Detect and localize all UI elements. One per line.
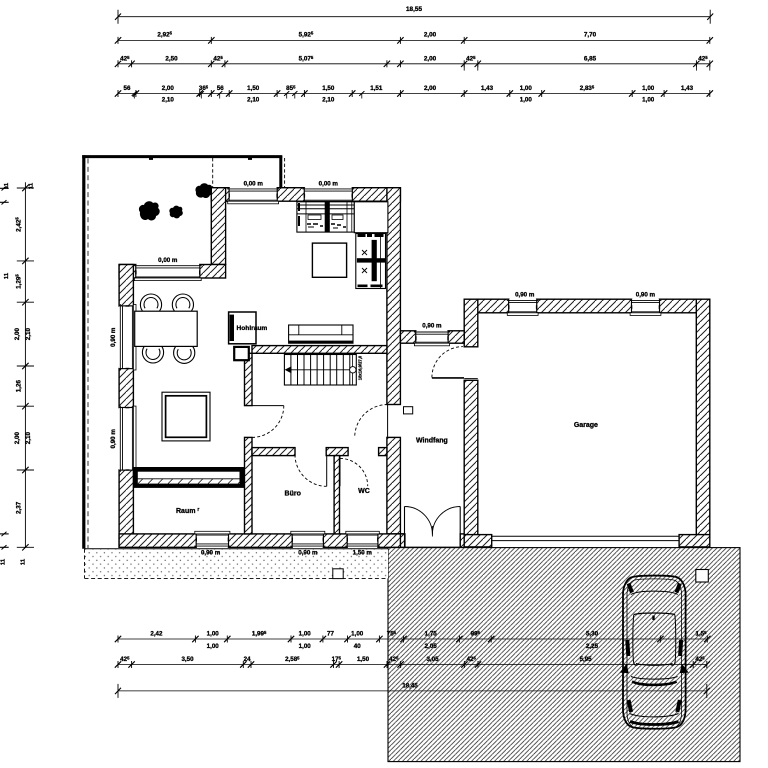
svg-text:18,45: 18,45 [402,683,418,690]
svg-text:0,90 m: 0,90 m [636,292,656,299]
svg-text:0,90 m: 0,90 m [110,429,117,449]
svg-text:24: 24 [244,656,251,663]
svg-text:11: 11 [4,182,10,189]
svg-text:2,37: 2,37 [16,501,23,514]
svg-text:18,55: 18,55 [406,6,422,13]
svg-text:2,50: 2,50 [165,56,178,63]
svg-text:77: 77 [327,631,334,638]
svg-text:2,00: 2,00 [14,431,21,444]
svg-text:0,90 m: 0,90 m [422,323,442,330]
svg-text:1,50 m: 1,50 m [353,550,373,557]
svg-text:5,30: 5,30 [586,631,599,638]
svg-text:2,00: 2,00 [424,31,437,38]
svg-text:3,05: 3,05 [426,656,439,663]
svg-text:1,00: 1,00 [299,631,312,638]
svg-text:1,00: 1,00 [207,631,220,638]
svg-text:11: 11 [1,558,7,565]
svg-text:40: 40 [354,643,361,650]
svg-text:2,10: 2,10 [322,96,335,103]
svg-text:2,10: 2,10 [25,431,32,444]
svg-text:Hohlraum: Hohlraum [237,325,268,332]
svg-text:5,95: 5,95 [580,656,593,663]
svg-text:1,00: 1,00 [642,85,655,92]
svg-text:Windfang: Windfang [416,438,448,445]
svg-text:2,00: 2,00 [424,56,437,63]
svg-text:Büro: Büro [285,490,301,497]
svg-text:7,70: 7,70 [584,31,597,38]
svg-text:1,00: 1,00 [299,643,312,650]
svg-text:2,42: 2,42 [150,631,163,638]
svg-text:2,05: 2,05 [425,643,438,650]
svg-text:11: 11 [29,182,35,189]
svg-text:WC: WC [358,488,370,495]
svg-text:1,00: 1,00 [520,85,533,92]
svg-text:18x16,9/27,0: 18x16,9/27,0 [358,355,363,380]
svg-text:2,00: 2,00 [424,85,437,92]
svg-text:56: 56 [217,85,224,92]
svg-text:11: 11 [4,272,10,279]
svg-text:1,00: 1,00 [520,96,533,103]
svg-text:6,85: 6,85 [584,56,597,63]
svg-text:0,90 m: 0,90 m [298,550,318,557]
svg-text:2,25: 2,25 [586,643,599,650]
svg-text:2,10: 2,10 [247,96,260,103]
svg-text:1,00: 1,00 [642,96,655,103]
svg-text:1,50: 1,50 [322,85,335,92]
svg-text:Raum r: Raum r [176,507,199,515]
svg-text:1,51: 1,51 [370,85,383,92]
svg-text:2,10: 2,10 [162,96,175,103]
svg-text:1,26: 1,26 [16,379,23,392]
svg-text:2,00: 2,00 [14,327,21,340]
svg-text:2,10: 2,10 [25,327,32,340]
svg-text:3,50: 3,50 [181,656,194,663]
svg-text:0,90 m: 0,90 m [201,550,221,557]
svg-text:1,50: 1,50 [357,656,370,663]
svg-text:1,00: 1,00 [207,643,220,650]
svg-text:0,00 m: 0,00 m [244,180,264,187]
svg-text:0,90 m: 0,90 m [110,327,117,347]
svg-text:11: 11 [21,558,27,565]
svg-text:1,43: 1,43 [481,85,494,92]
svg-text:0,00 m: 0,00 m [319,180,339,187]
svg-text:1,00: 1,00 [351,631,364,638]
svg-text:1,75: 1,75 [425,631,438,638]
svg-text:1,43: 1,43 [681,85,694,92]
svg-text:56: 56 [124,85,131,92]
svg-text:1,50: 1,50 [247,85,260,92]
svg-text:2,00: 2,00 [162,85,175,92]
svg-text:0,00 m: 0,00 m [158,257,178,264]
svg-text:0,90 m: 0,90 m [515,292,535,299]
svg-text:Garage: Garage [574,422,598,429]
